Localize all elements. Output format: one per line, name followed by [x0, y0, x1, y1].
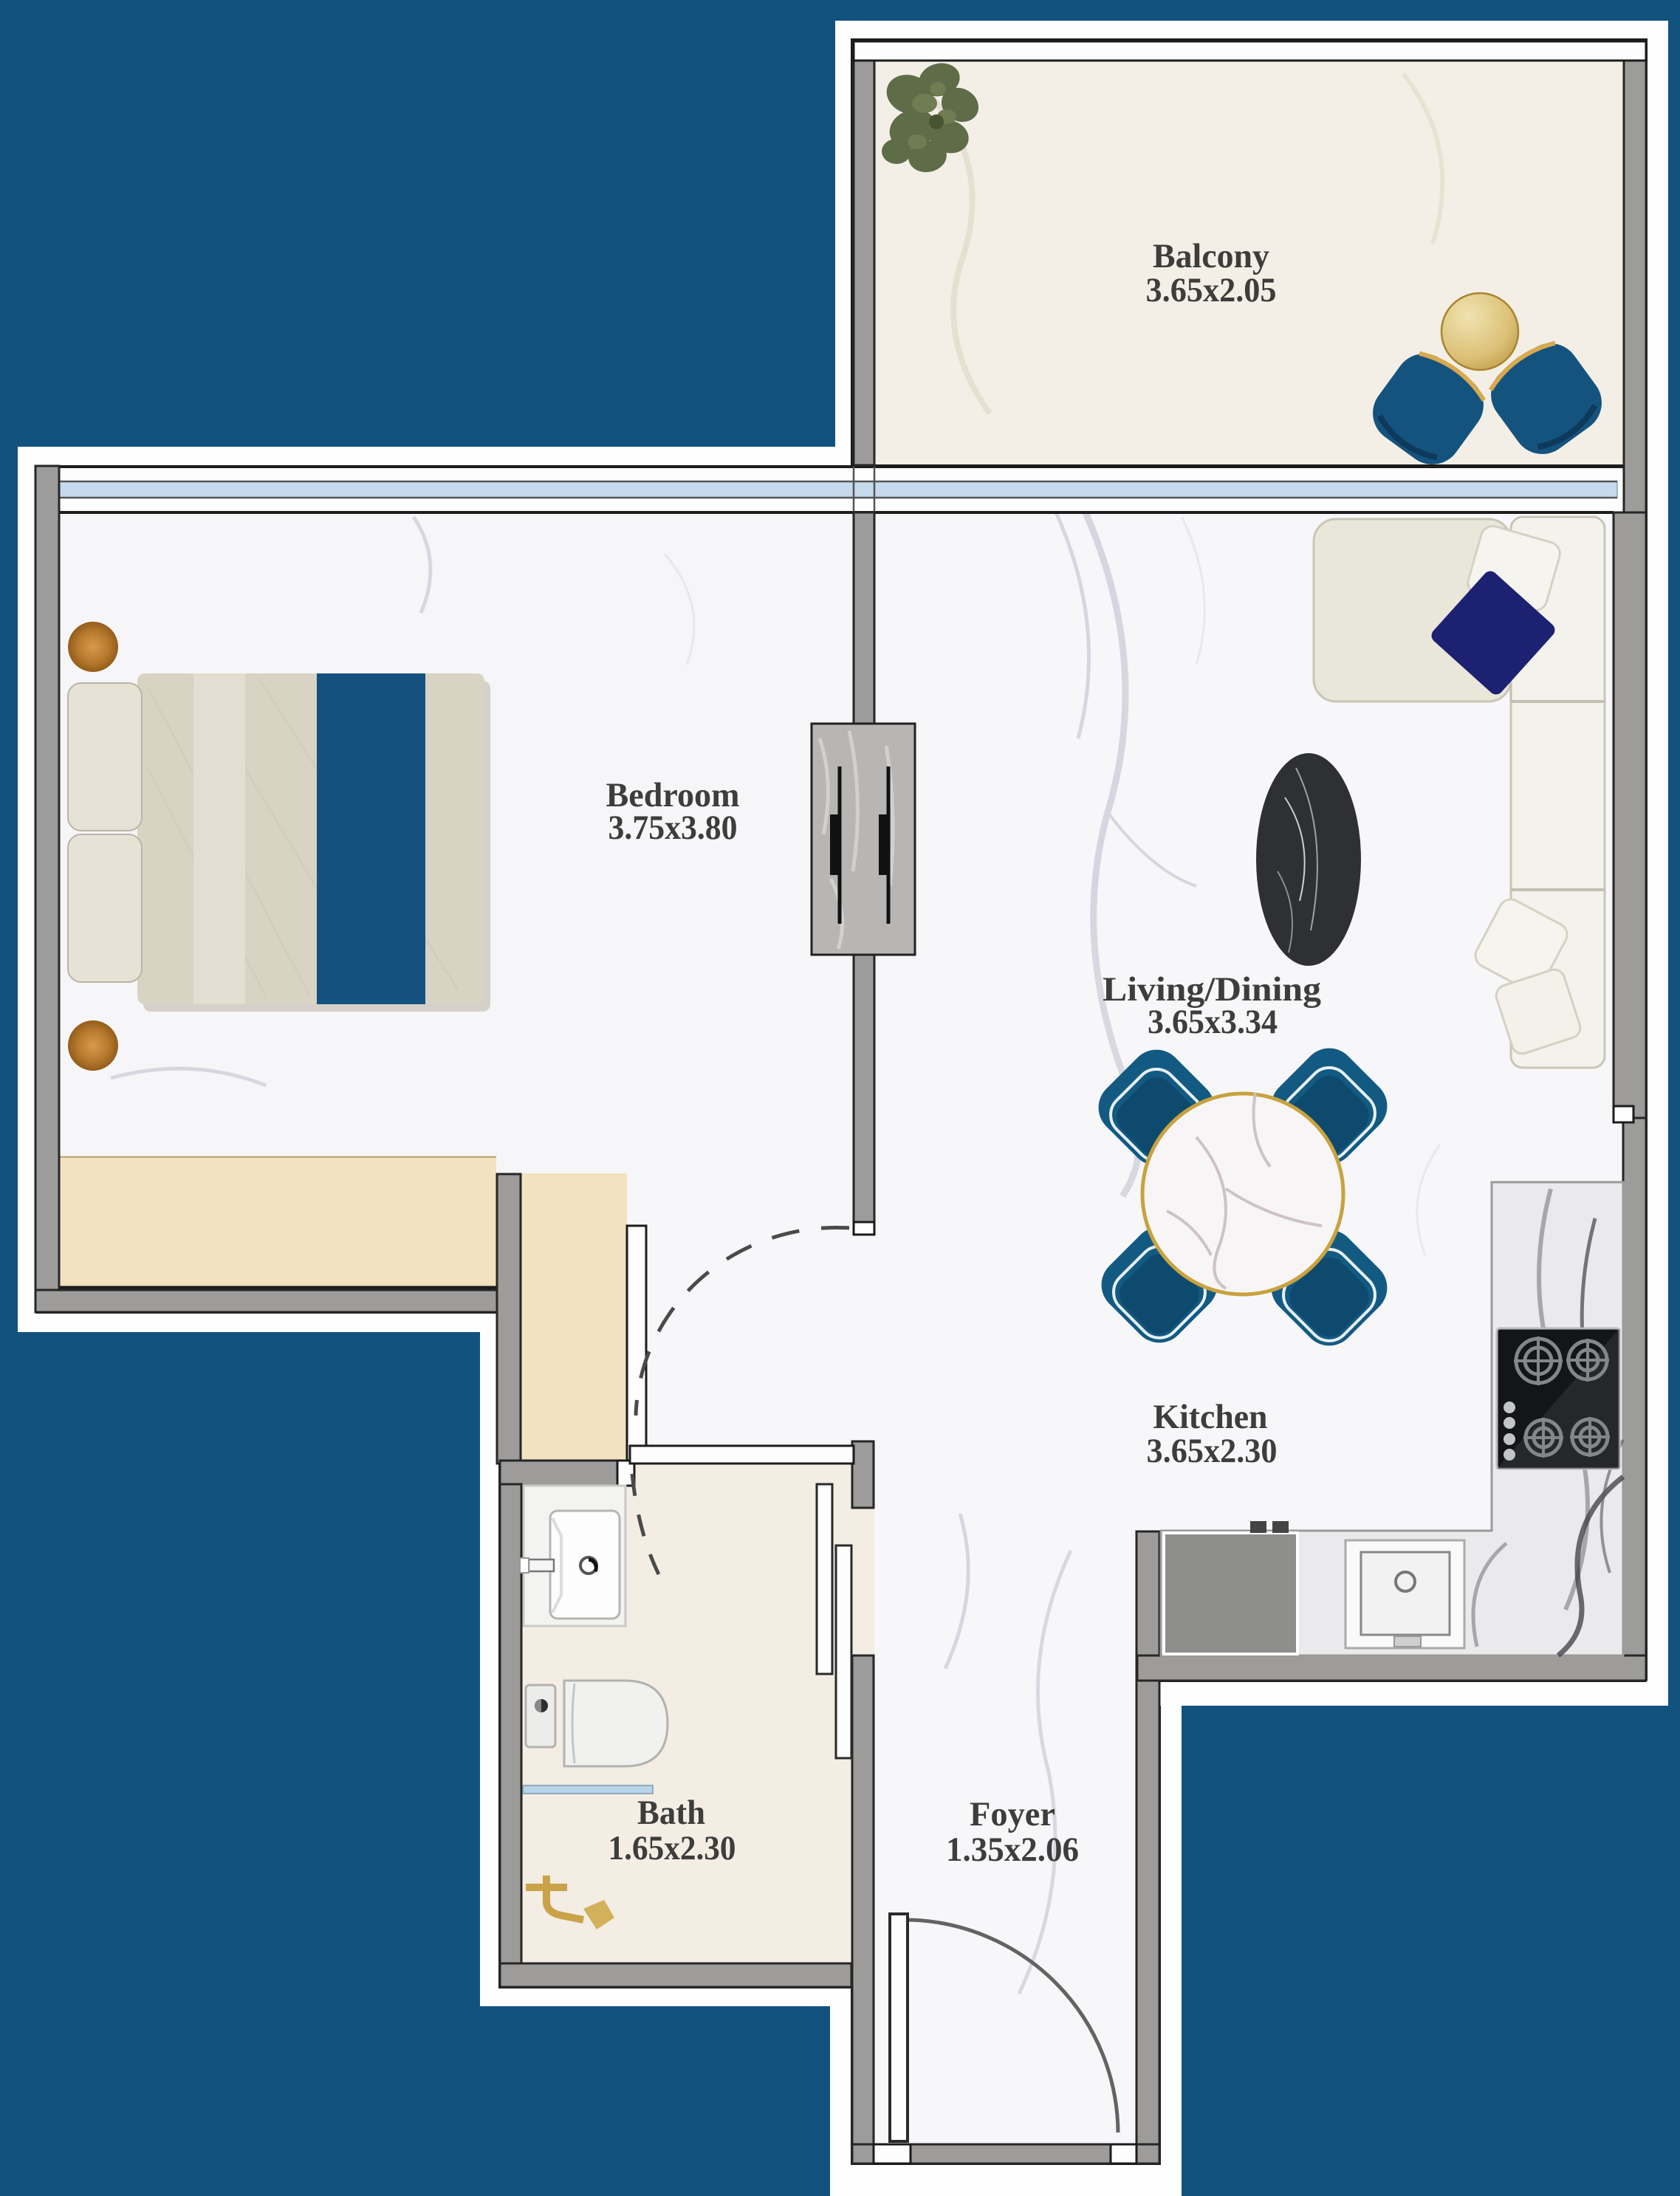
svg-text:Kitchen: Kitchen — [1153, 1398, 1268, 1436]
svg-text:3.65x2.30: 3.65x2.30 — [1147, 1432, 1278, 1470]
svg-text:3.75x3.80: 3.75x3.80 — [608, 809, 738, 847]
svg-text:3.65x3.34: 3.65x3.34 — [1148, 1003, 1278, 1041]
svg-text:Foyer: Foyer — [970, 1795, 1055, 1833]
svg-text:1.35x2.06: 1.35x2.06 — [946, 1830, 1079, 1869]
svg-text:Balcony: Balcony — [1153, 237, 1269, 275]
svg-text:Bath: Bath — [637, 1794, 705, 1832]
svg-text:1.65x2.30: 1.65x2.30 — [608, 1829, 736, 1867]
svg-text:3.65x2.05: 3.65x2.05 — [1146, 271, 1277, 309]
